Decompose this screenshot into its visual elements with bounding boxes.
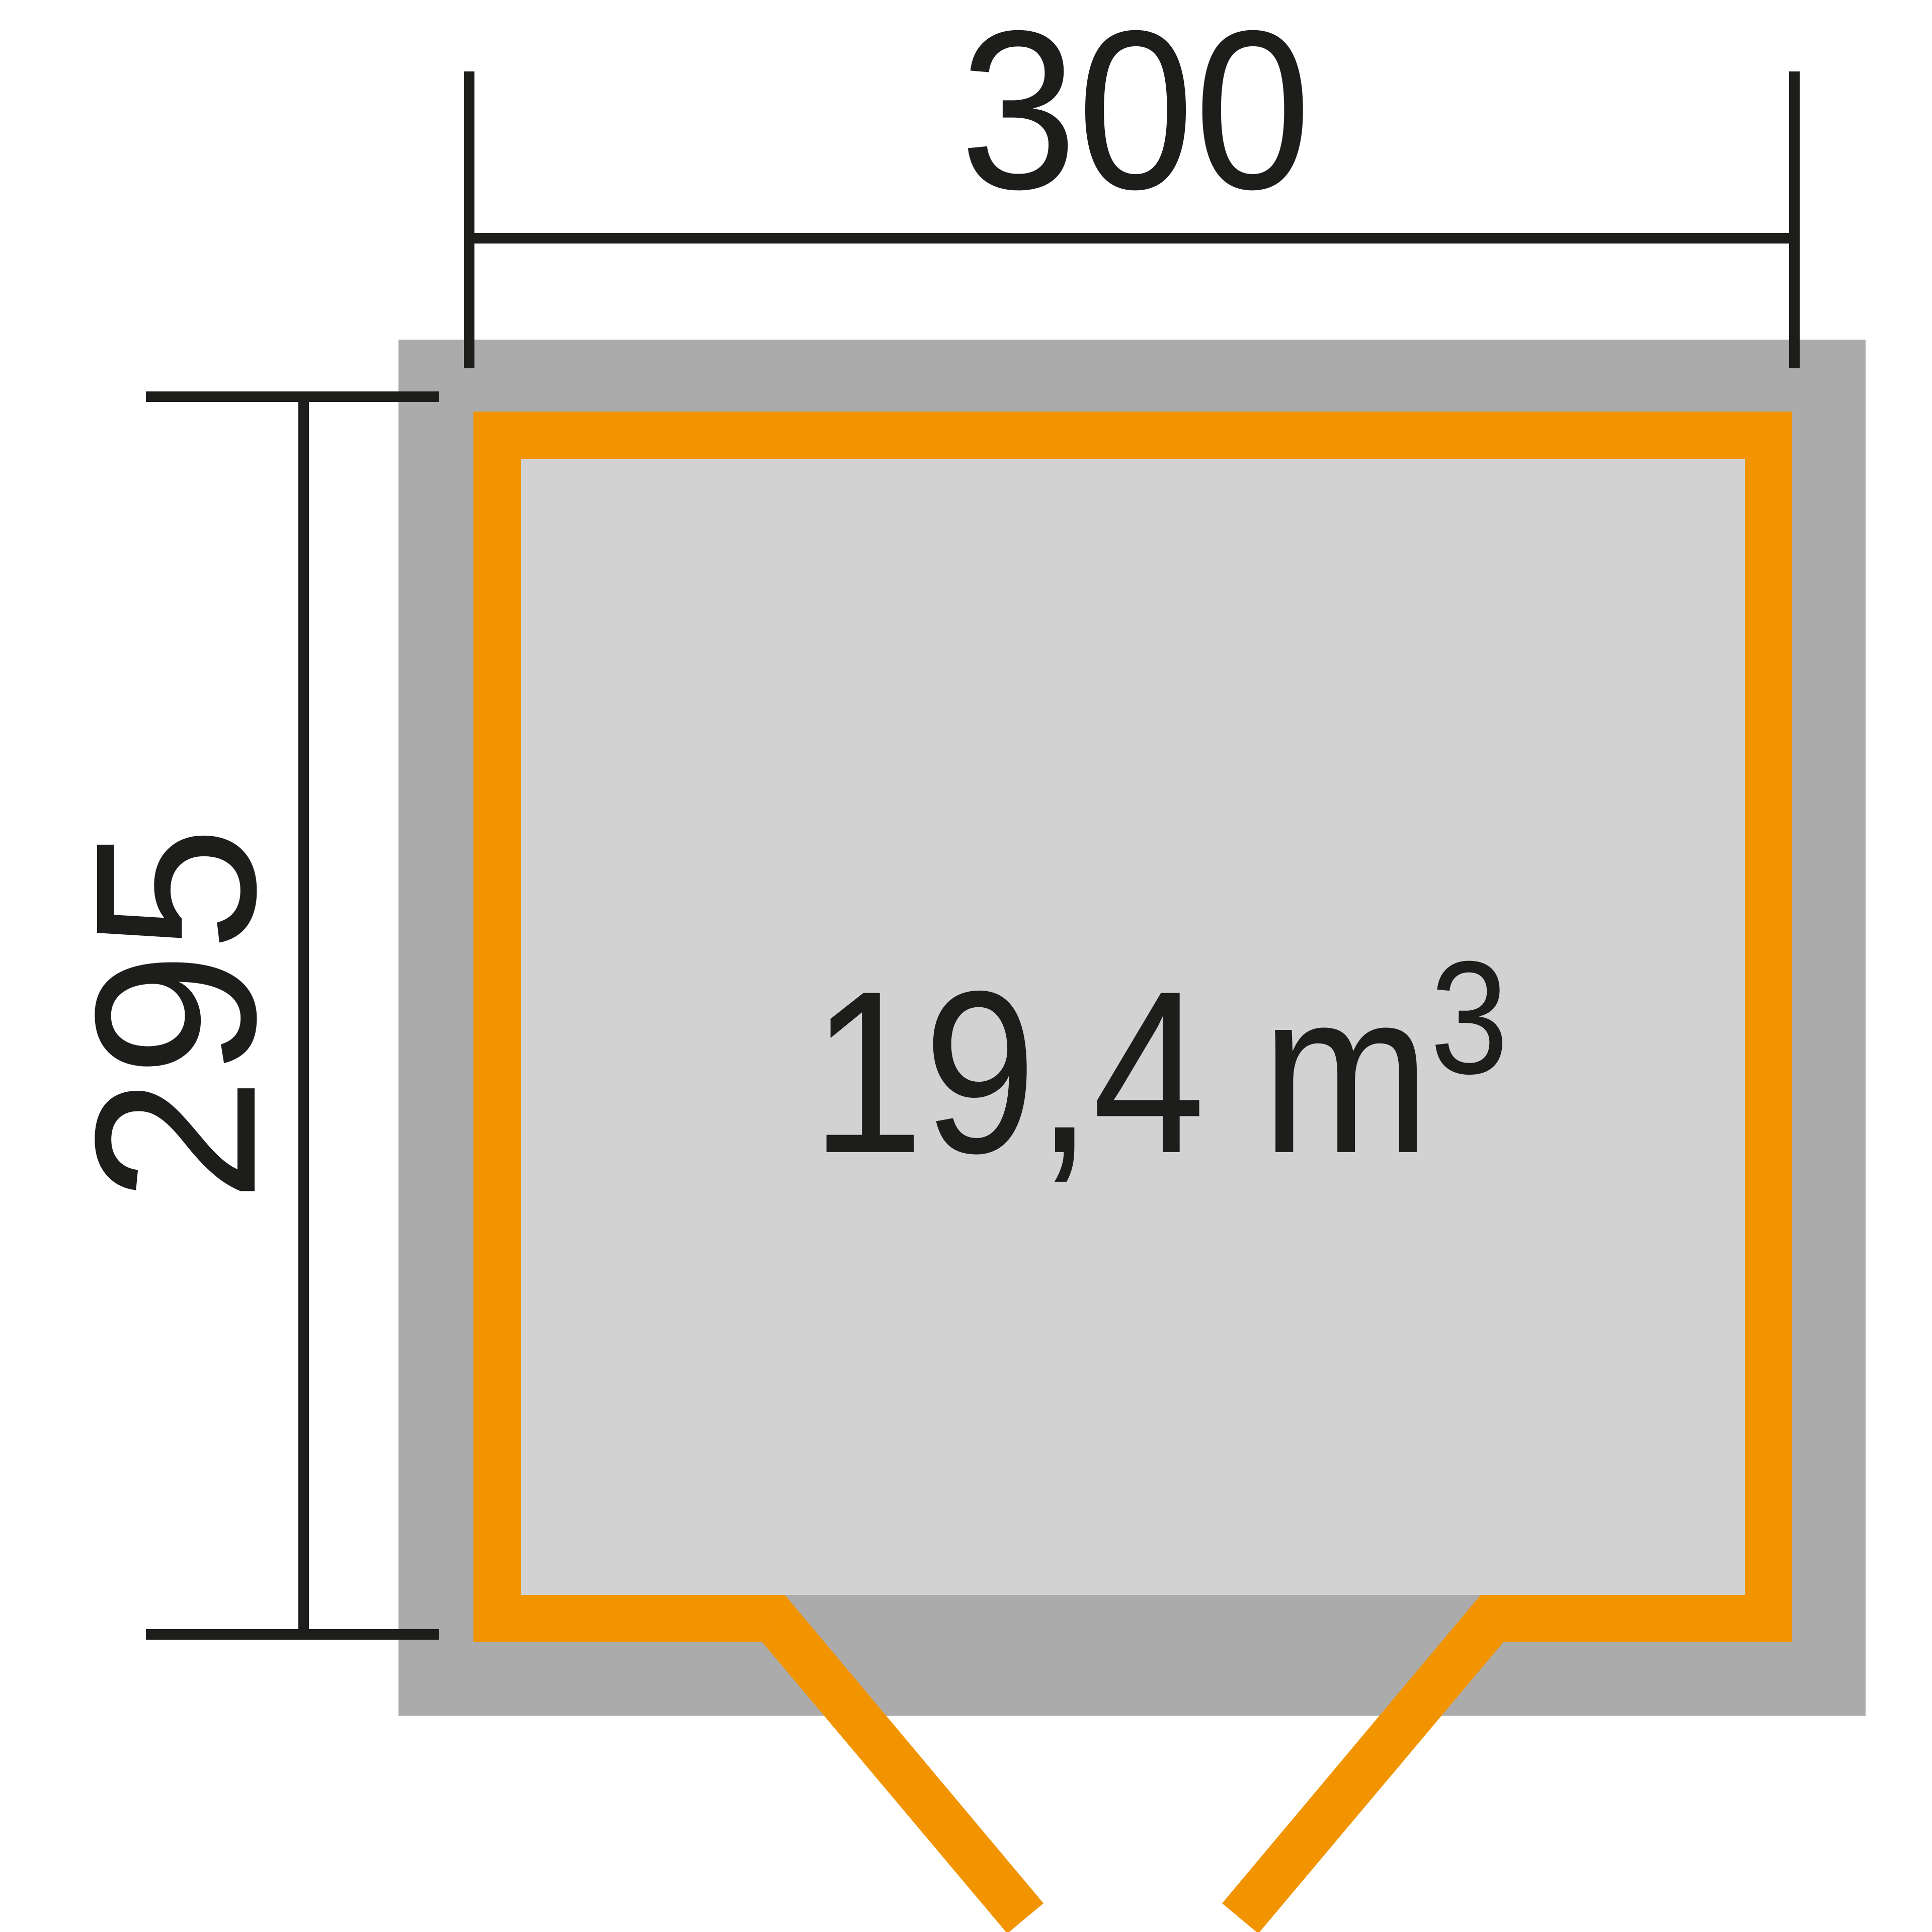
svg-text:300: 300 xyxy=(960,0,1311,236)
svg-text:19,4 m3: 19,4 m3 xyxy=(811,928,1508,1201)
svg-text:295: 295 xyxy=(47,826,303,1202)
